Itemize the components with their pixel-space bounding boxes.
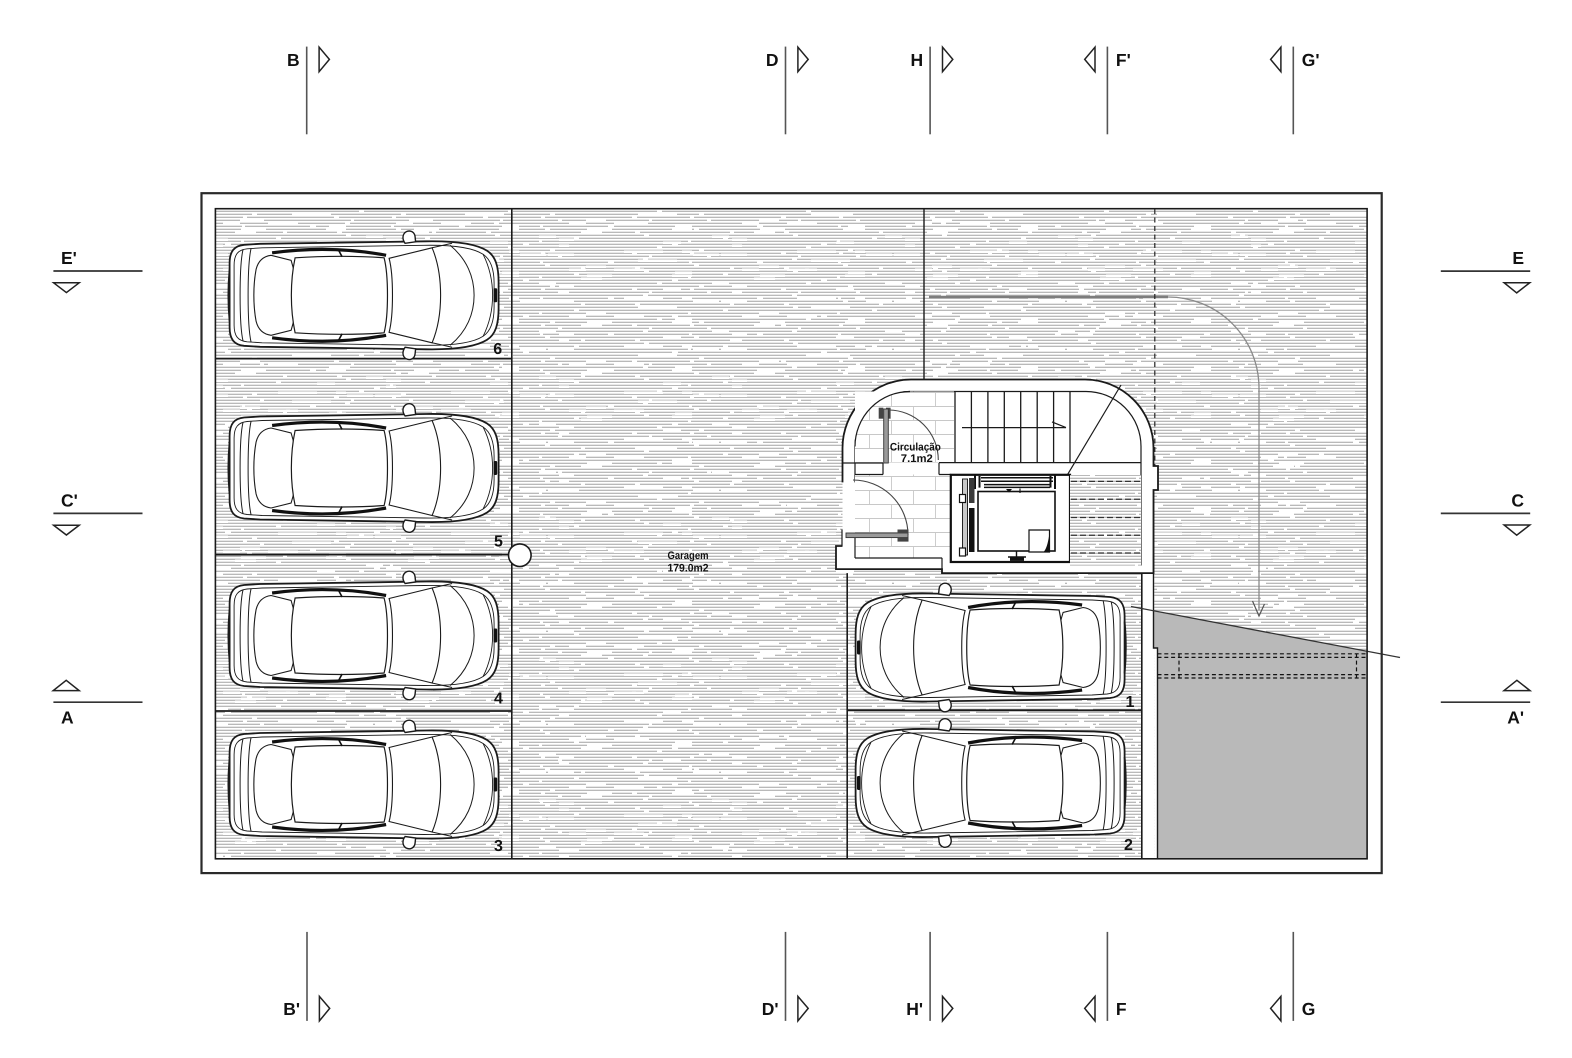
svg-text:C: C <box>1511 490 1524 510</box>
svg-text:179.0m2: 179.0m2 <box>668 562 709 574</box>
svg-text:F': F' <box>1116 50 1131 70</box>
svg-text:7.1m2: 7.1m2 <box>901 453 933 465</box>
svg-text:A: A <box>61 708 74 728</box>
svg-text:A': A' <box>1507 708 1524 728</box>
svg-text:B': B' <box>283 999 300 1019</box>
svg-text:G': G' <box>1302 50 1320 70</box>
svg-text:D': D' <box>762 999 779 1019</box>
svg-text:4: 4 <box>494 691 503 708</box>
svg-text:C': C' <box>61 490 78 510</box>
svg-text:Garagem: Garagem <box>668 550 709 562</box>
svg-text:E': E' <box>61 248 77 268</box>
svg-text:H: H <box>910 50 923 70</box>
svg-text:G: G <box>1302 999 1316 1019</box>
svg-text:F: F <box>1116 999 1127 1019</box>
svg-text:5: 5 <box>494 533 503 550</box>
svg-text:1: 1 <box>1126 694 1135 711</box>
svg-text:B: B <box>287 50 300 70</box>
svg-text:3: 3 <box>494 838 503 855</box>
svg-text:E: E <box>1512 248 1524 268</box>
svg-text:D: D <box>766 50 779 70</box>
svg-text:Circulação: Circulação <box>890 441 941 453</box>
svg-text:H': H' <box>906 999 923 1019</box>
svg-text:2: 2 <box>1124 837 1133 854</box>
svg-text:6: 6 <box>493 341 502 358</box>
